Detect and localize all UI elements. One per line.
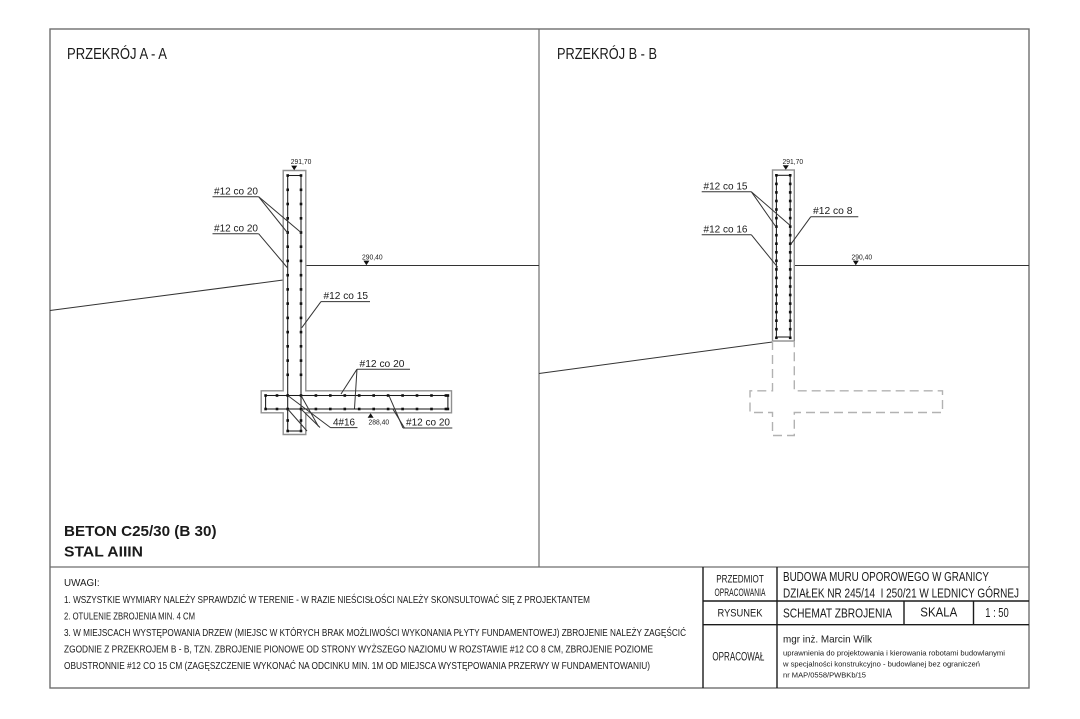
svg-text:#12 co 8: #12 co 8 [813, 205, 853, 217]
svg-text:2. OTULENIE ZBROJENIA MIN. 4 C: 2. OTULENIE ZBROJENIA MIN. 4 CM [64, 612, 195, 623]
svg-text:mgr inż. Marcin Wilk: mgr inż. Marcin Wilk [783, 634, 873, 646]
svg-text:ZGODNIE Z PRZEKROJEM B - B, TZ: ZGODNIE Z PRZEKROJEM B - B, TZN. ZBROJEN… [64, 645, 653, 656]
svg-text:DZIAŁEK NR 245/14 I 250/21 W: DZIAŁEK NR 245/14 I 250/21 W LEDNICY GÓR… [783, 586, 1019, 601]
svg-text:4#16: 4#16 [333, 416, 355, 428]
svg-text:OPRACOWANIA: OPRACOWANIA [715, 587, 766, 599]
svg-text:RYSUNEK: RYSUNEK [718, 608, 764, 620]
svg-text:291,70: 291,70 [783, 159, 804, 166]
svg-text:OBUSTRONNIE #12 CO 15 CM (ZAGĘ: OBUSTRONNIE #12 CO 15 CM (ZAGĘSZCZENIE W… [64, 661, 650, 672]
svg-text:#12 co 16: #12 co 16 [704, 224, 748, 236]
svg-text:w specjalności konstrukcyjno -: w specjalności konstrukcyjno - budowlane… [782, 660, 980, 669]
svg-text:1. WSZYSTKIE WYMIARY NALEŻY SP: 1. WSZYSTKIE WYMIARY NALEŻY SPRAWDZIĆ W … [64, 594, 590, 606]
svg-text:#12 co 20: #12 co 20 [406, 417, 450, 429]
svg-text:SKALA: SKALA [920, 606, 958, 620]
svg-text:PRZEKRÓJ A - A: PRZEKRÓJ A - A [67, 46, 168, 63]
svg-text:288,40: 288,40 [369, 420, 390, 427]
svg-text:#12 co 20: #12 co 20 [360, 358, 405, 370]
svg-text:291,70: 291,70 [291, 159, 312, 166]
svg-text:BETON C25/30 (B 30): BETON C25/30 (B 30) [64, 523, 217, 540]
svg-text:290,40: 290,40 [852, 254, 873, 261]
svg-text:SCHEMAT ZBROJENIA: SCHEMAT ZBROJENIA [783, 606, 893, 620]
svg-text:UWAGI:: UWAGI: [64, 578, 100, 589]
svg-text:#12 co 20: #12 co 20 [214, 223, 258, 235]
svg-text:nr MAP/0558/PWBKb/15: nr MAP/0558/PWBKb/15 [783, 670, 866, 679]
svg-text:290,40: 290,40 [362, 254, 383, 261]
svg-text:uprawnienia do projektowania i: uprawnienia do projektowania i kierowani… [783, 648, 1005, 657]
svg-text:STAL AIIIN: STAL AIIIN [64, 544, 143, 561]
svg-text:OPRACOWAŁ: OPRACOWAŁ [712, 652, 764, 664]
svg-text:BUDOWA MURU OPOROWEGO W GRANIC: BUDOWA MURU OPOROWEGO W GRANICY [783, 570, 990, 584]
svg-text:PRZEKRÓJ B - B: PRZEKRÓJ B - B [557, 46, 657, 63]
svg-text:#12 co 15: #12 co 15 [324, 290, 369, 302]
svg-text:#12 co 15: #12 co 15 [704, 181, 748, 193]
svg-text:#12 co 20: #12 co 20 [214, 186, 258, 198]
svg-text:PRZEDMIOT: PRZEDMIOT [716, 574, 764, 586]
svg-text:1 : 50: 1 : 50 [985, 606, 1009, 620]
svg-text:3. W MIEJSCACH WYSTĘPOWANIA DR: 3. W MIEJSCACH WYSTĘPOWANIA DRZEW (MIEJS… [64, 627, 686, 639]
